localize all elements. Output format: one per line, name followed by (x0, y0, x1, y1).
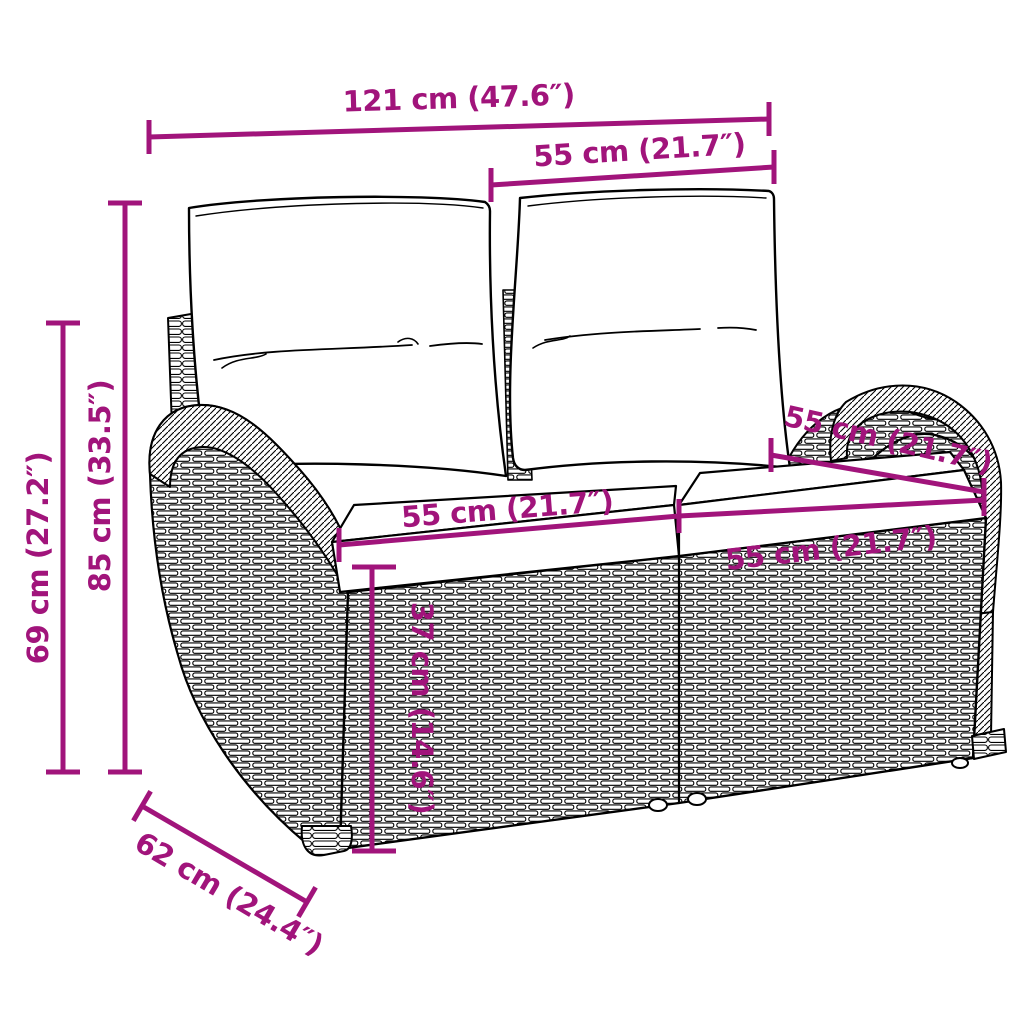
foot-small-1 (649, 799, 667, 811)
dim-armrest-height-label: 69 cm (27.2″) (21, 452, 55, 664)
dim-backrest-width-label: 55 cm (21.7″) (532, 127, 746, 174)
dimension-diagram-page: 121 cm (47.6″) 55 cm (21.7″) 85 cm (33.5… (0, 0, 1024, 1024)
left-armrest-body (149, 405, 348, 843)
back-cushion-right (510, 189, 790, 470)
dim-armrest-height: 69 cm (27.2″) (21, 323, 80, 772)
foot-small-2 (688, 793, 706, 805)
dim-overall-width-label: 121 cm (47.6″) (342, 77, 575, 118)
dim-overall-depth-label: 62 cm (24.4″) (129, 825, 329, 962)
front-left-foot (302, 826, 352, 855)
dim-overall-height-label: 85 cm (33.5″) (83, 380, 117, 592)
dim-overall-height: 85 cm (33.5″) (83, 203, 142, 772)
foot-small-3 (952, 758, 968, 768)
dim-seat-height-label: 37 cm (14.6″) (405, 602, 439, 814)
bench-dimension-diagram: 121 cm (47.6″) 55 cm (21.7″) 85 cm (33.5… (0, 0, 1024, 1024)
